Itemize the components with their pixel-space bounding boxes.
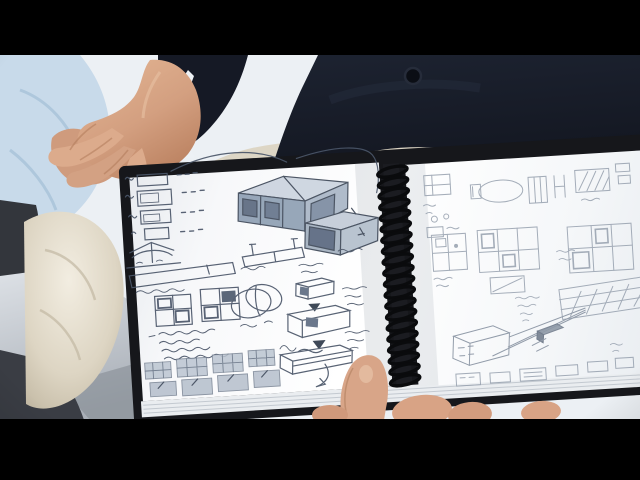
letterbox-top — [0, 0, 640, 55]
letterbox-bottom — [0, 419, 640, 480]
vignette — [0, 0, 640, 480]
video-frame — [0, 0, 640, 480]
